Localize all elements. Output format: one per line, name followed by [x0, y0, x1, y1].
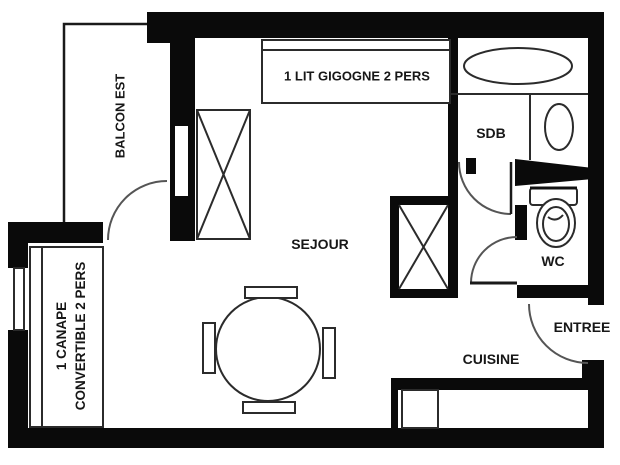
bed-label: 1 LIT GIGOGNE 2 PERS	[284, 69, 430, 84]
wall-top	[147, 12, 604, 38]
wall-bottom	[8, 428, 604, 448]
sofa-label-line2: CONVERTIBLE 2 PERS	[71, 262, 90, 411]
chair-right	[323, 328, 335, 378]
kitchen-counter-left-edge	[391, 378, 398, 433]
balcony-outline	[64, 24, 147, 222]
balcony-label: BALCON EST	[113, 74, 128, 159]
wall-wc-bottom	[517, 285, 593, 298]
wall-bathroom-door-jamb	[466, 158, 476, 174]
kitchen-sink	[402, 390, 438, 428]
sofa-label: 1 CANAPE CONVERTIBLE 2 PERS	[52, 262, 90, 411]
floor-plan: BALCON EST 1 LIT GIGOGNE 2 PERS SDB SEJO…	[0, 0, 620, 465]
wc-label: WC	[541, 253, 564, 269]
bathroom-label: SDB	[476, 125, 506, 141]
kitchen-counter-edge	[391, 378, 593, 390]
wall-right-upper	[588, 12, 604, 305]
chair-bottom	[243, 402, 295, 413]
bathtub	[464, 48, 572, 84]
west-window	[14, 268, 24, 330]
wall-balcony-south	[8, 222, 103, 243]
wall-wc-left	[515, 205, 527, 240]
entrance-label: ENTREE	[554, 319, 611, 335]
sofa-label-line1: 1 CANAPE	[52, 262, 71, 411]
balcony-window-opening	[175, 126, 188, 196]
balcony-door-arc	[108, 181, 167, 240]
washbasin	[545, 104, 573, 150]
toilet-bowl-inner	[543, 207, 569, 241]
wall-left-lower	[8, 330, 28, 428]
living-room-label: SEJOUR	[291, 236, 349, 252]
wc-door-arc	[471, 237, 517, 283]
wall-wc-top	[515, 159, 593, 186]
dining-table	[216, 297, 320, 401]
chair-top	[245, 287, 297, 298]
chair-left	[203, 323, 215, 373]
kitchen-label: CUISINE	[463, 351, 520, 367]
